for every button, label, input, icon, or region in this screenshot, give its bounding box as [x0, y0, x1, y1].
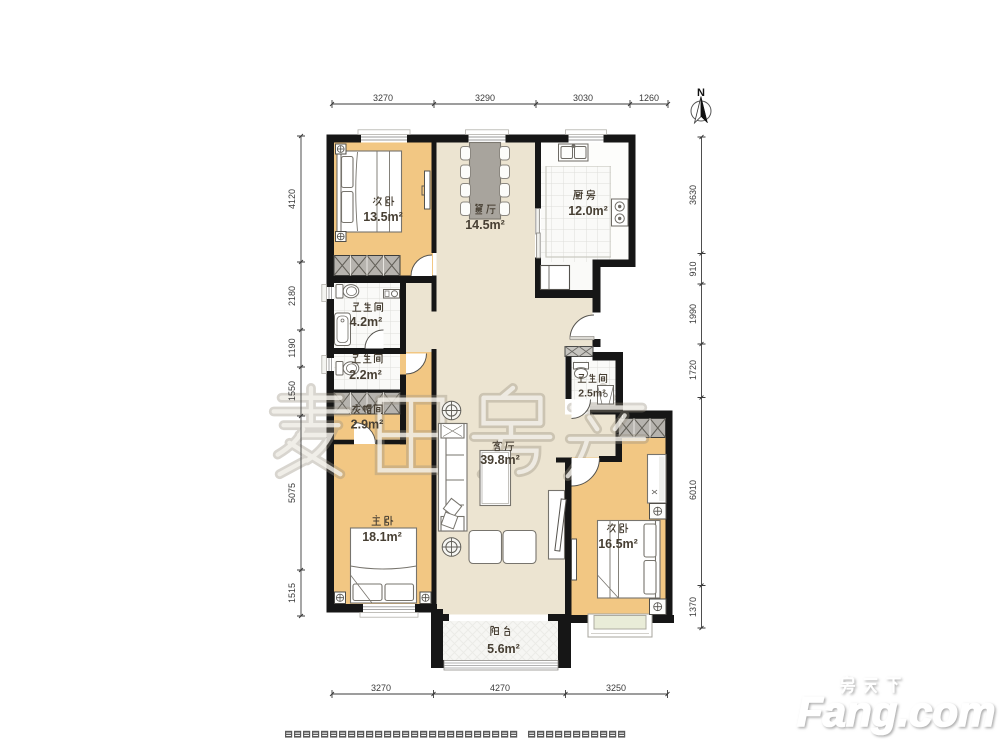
svg-text:2.9m²: 2.9m² — [351, 418, 384, 432]
svg-text:13.5m²: 13.5m² — [363, 210, 403, 224]
svg-text:16.5m²: 16.5m² — [598, 537, 638, 551]
svg-text:4120: 4120 — [287, 189, 297, 209]
svg-text:3270: 3270 — [371, 683, 391, 693]
svg-text:3630: 3630 — [688, 185, 698, 205]
svg-text:39.8m²: 39.8m² — [480, 453, 520, 467]
svg-text:1190: 1190 — [287, 338, 297, 357]
svg-text:2.2m²: 2.2m² — [349, 368, 382, 382]
svg-text:14.5m²: 14.5m² — [465, 218, 505, 232]
svg-text:2180: 2180 — [287, 286, 297, 306]
svg-text:12.0m²: 12.0m² — [568, 204, 608, 218]
svg-text:3270: 3270 — [373, 93, 393, 103]
svg-text:4.2m²: 4.2m² — [350, 315, 383, 329]
svg-text:4270: 4270 — [490, 683, 510, 693]
svg-text:3290: 3290 — [475, 93, 495, 103]
svg-text:910: 910 — [688, 261, 698, 276]
svg-text:Fang.com: Fang.com — [797, 688, 995, 735]
svg-text:1370: 1370 — [688, 597, 698, 617]
svg-text:5075: 5075 — [287, 483, 297, 503]
svg-text:18.1m²: 18.1m² — [362, 530, 402, 544]
svg-text:5.6m²: 5.6m² — [487, 642, 520, 656]
svg-text:1990: 1990 — [688, 304, 698, 324]
svg-text:6010: 6010 — [688, 480, 698, 500]
svg-text:3030: 3030 — [573, 93, 593, 103]
svg-text:1550: 1550 — [287, 381, 297, 401]
svg-text:3250: 3250 — [606, 683, 626, 693]
svg-text:1515: 1515 — [287, 583, 297, 603]
svg-text:1720: 1720 — [688, 360, 698, 380]
svg-text:1260: 1260 — [639, 93, 659, 103]
svg-text:2.5m²: 2.5m² — [578, 388, 606, 400]
